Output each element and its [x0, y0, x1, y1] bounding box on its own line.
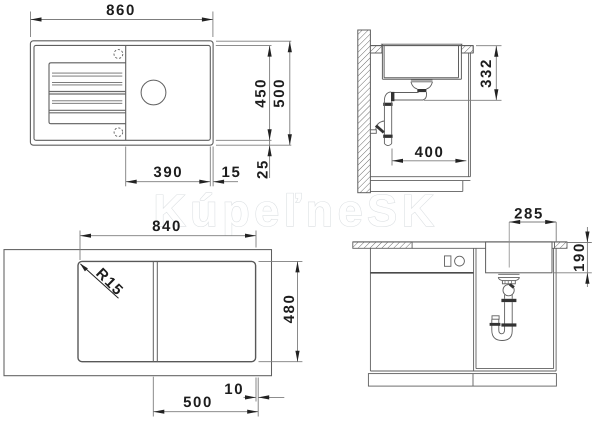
svg-text:500: 500 [183, 394, 213, 411]
svg-text:KúpeľneSK: KúpeľneSK [153, 185, 438, 236]
svg-text:450: 450 [252, 78, 269, 108]
svg-text:25: 25 [254, 159, 271, 179]
svg-text:840: 840 [152, 218, 182, 235]
svg-text:390: 390 [153, 164, 183, 181]
svg-text:15: 15 [222, 164, 242, 181]
svg-text:190: 190 [571, 242, 588, 272]
svg-text:400: 400 [415, 144, 445, 161]
svg-text:500: 500 [271, 78, 288, 108]
svg-text:332: 332 [478, 58, 495, 88]
svg-text:480: 480 [281, 294, 298, 324]
svg-text:860: 860 [106, 2, 136, 19]
svg-text:285: 285 [514, 206, 544, 223]
svg-text:10: 10 [224, 381, 244, 398]
